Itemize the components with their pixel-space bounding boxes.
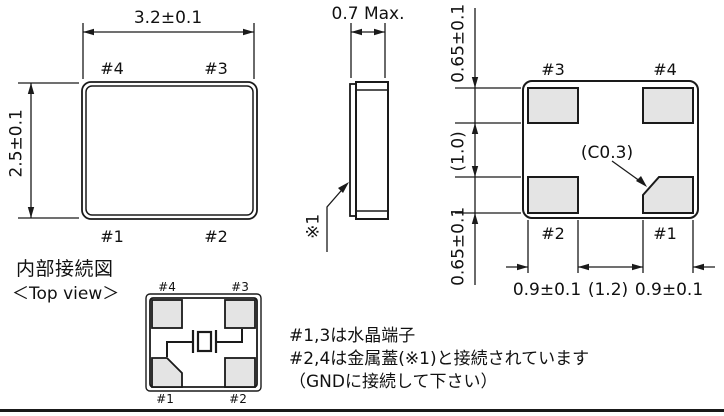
- lid-reference-label: ※1: [305, 206, 324, 246]
- bottom-view-gap-v-dim: (1.0): [450, 121, 469, 181]
- top-view-pad2-label: #2: [196, 228, 236, 246]
- internal-pad3-label: #3: [225, 281, 255, 294]
- arrowhead-up: [472, 123, 478, 134]
- arrowhead-right: [243, 29, 254, 35]
- arrowhead-down: [472, 77, 478, 88]
- arrowhead-left: [83, 29, 94, 35]
- side-view-drawing: [327, 23, 388, 252]
- arrowhead-down: [472, 166, 478, 177]
- note-line-2: #2,4は金属蓋(※1)と接続されています: [289, 348, 589, 371]
- pad-3: [528, 88, 578, 123]
- arrowhead-left: [693, 264, 704, 270]
- bottom-view-pad-width-right-dim: 0.9±0.1: [629, 281, 709, 300]
- bottom-view-pad3-label: #3: [533, 61, 573, 79]
- bottom-view-pad-bottom-dim: 0.65±0.1: [450, 206, 469, 286]
- arrowhead-up: [472, 213, 478, 224]
- side-view-thickness-dim: 0.7 Max.: [318, 5, 418, 24]
- pad-4: [152, 300, 182, 328]
- arrowhead-right: [517, 264, 528, 270]
- top-view-pad1-label: #1: [92, 228, 132, 246]
- arrowhead-down: [28, 207, 34, 218]
- note-line-1: #1,3は水晶端子: [289, 325, 589, 348]
- arrowhead-right: [632, 264, 643, 270]
- bottom-view-pad-width-left-dim: 0.9±0.1: [507, 281, 587, 300]
- arrowhead-left: [578, 264, 589, 270]
- pad-2: [225, 358, 255, 387]
- internal-pad2-label: #2: [223, 393, 253, 406]
- note-line-3: （GNDに接続して下さい）: [289, 371, 589, 394]
- internal-connection-title: 内部接続図: [16, 259, 114, 280]
- internal-pad4-label: #4: [152, 281, 182, 294]
- top-view-drawing: [18, 23, 257, 219]
- pad-2: [528, 177, 578, 213]
- internal-connection-subtitle: ＜Top view＞: [12, 285, 119, 304]
- crystal-package-drawing: 3.2±0.1 2.5±0.1 #4 #3 #1 #2 0.7 Max. ※1 …: [0, 0, 724, 416]
- arrowhead-diagonal: [338, 182, 349, 193]
- bottom-view-pad1-label: #1: [645, 225, 685, 243]
- chamfer-callout-label: (C0.3): [572, 144, 642, 163]
- arrowhead-up: [28, 83, 34, 94]
- lid-leader-line: [327, 184, 347, 252]
- bottom-view-pad-top-dim: 0.65±0.1: [450, 3, 469, 83]
- bottom-view-pad4-label: #4: [645, 61, 685, 79]
- internal-connection-drawing: [146, 294, 261, 391]
- internal-pad1-label: #1: [150, 393, 180, 406]
- crystal-element: [198, 332, 211, 351]
- top-view-pad4-label: #4: [92, 60, 132, 78]
- bottom-rule: [0, 409, 724, 412]
- package-outline-outer: [82, 82, 257, 219]
- terminal-notes: #1,3は水晶端子 #2,4は金属蓋(※1)と接続されています （GNDに接続し…: [289, 325, 589, 394]
- top-view-pad3-label: #3: [196, 60, 236, 78]
- package-side-profile: [356, 82, 388, 219]
- top-view-height-dim: 2.5±0.1: [8, 98, 27, 188]
- arrowhead-left: [351, 29, 362, 35]
- arrowhead-right: [374, 29, 385, 35]
- pad-4: [643, 88, 693, 123]
- bottom-view-pad2-label: #2: [533, 225, 573, 243]
- pad-3: [225, 300, 255, 328]
- top-view-width-dim: 3.2±0.1: [110, 9, 226, 28]
